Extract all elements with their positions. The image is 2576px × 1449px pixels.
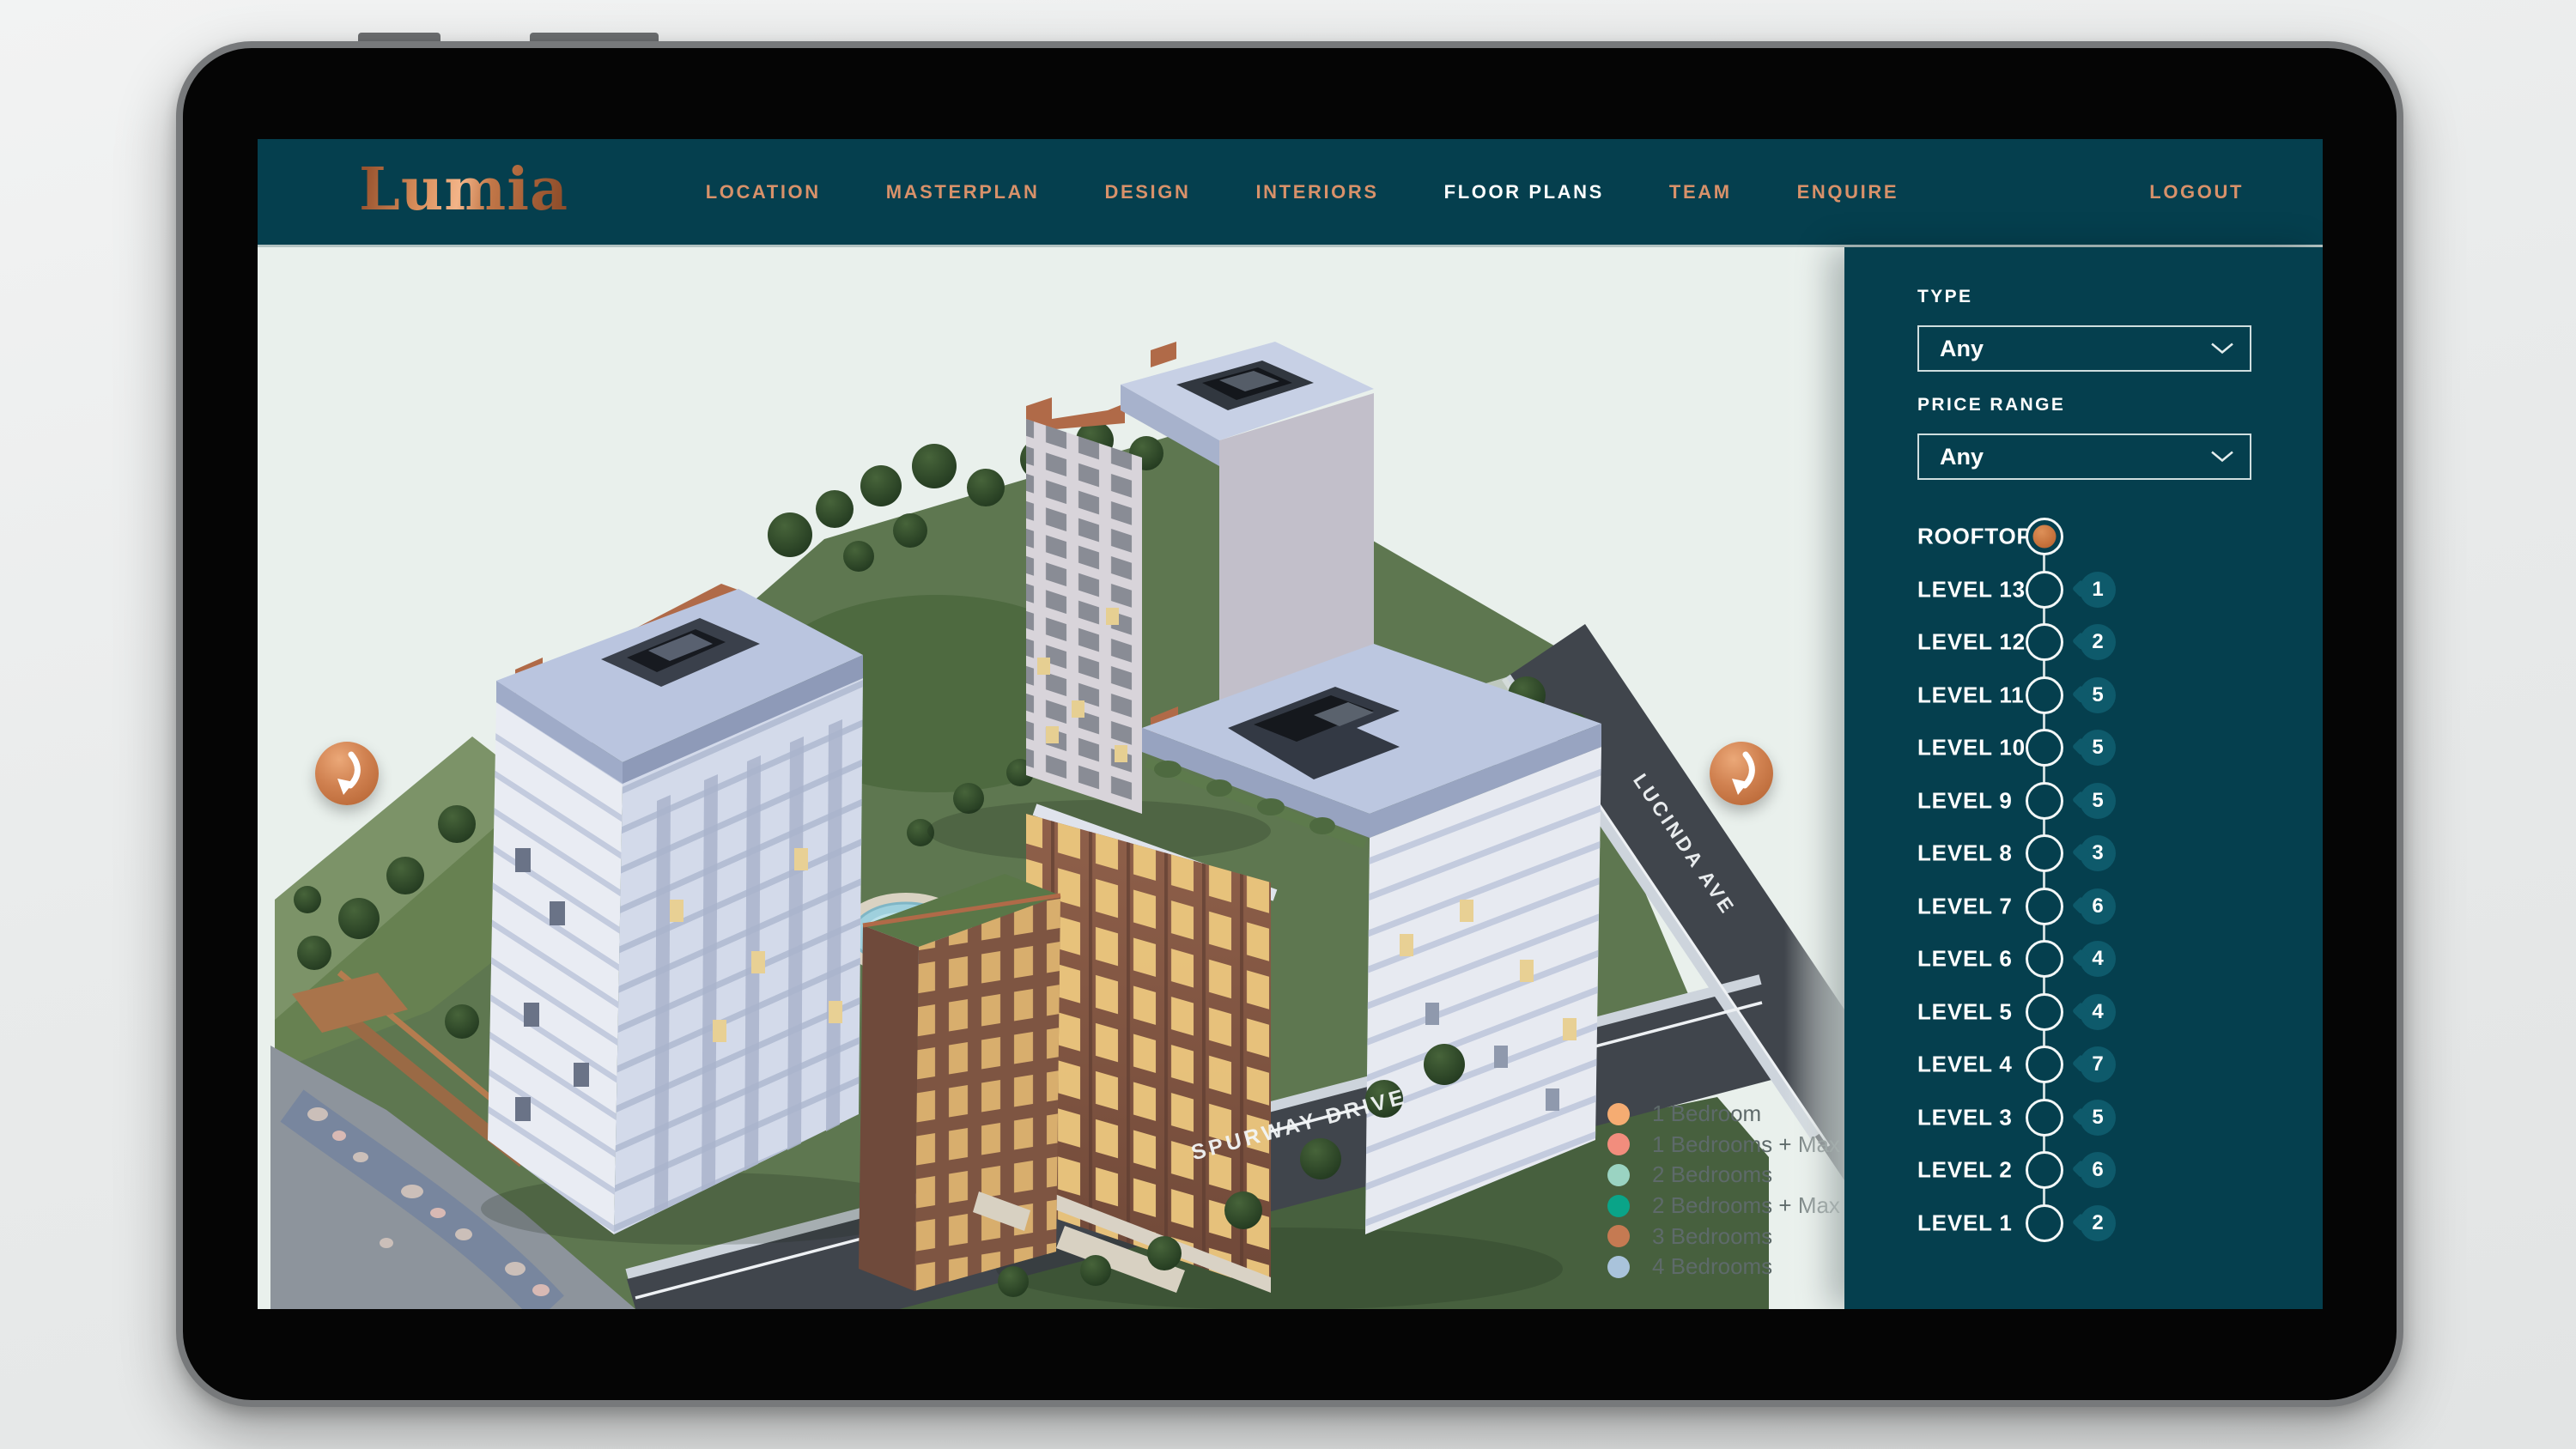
nav-item-design[interactable]: DESIGN bbox=[1105, 181, 1191, 203]
level-circle[interactable] bbox=[2026, 729, 2063, 767]
level-circle[interactable] bbox=[2026, 940, 2063, 978]
page: Lumia LOCATION MASTERPLAN DESIGN INTERIO… bbox=[0, 0, 2576, 1449]
level-selector: ROOFTOP LEVEL 13 1 LEVEL 12 2 LEVEL 11 5 bbox=[1844, 247, 2323, 1309]
level-circle[interactable] bbox=[2026, 623, 2063, 661]
rotate-right-button[interactable] bbox=[1710, 742, 1773, 805]
level-count-badge: 6 bbox=[2080, 1152, 2116, 1188]
level-count-badge: 5 bbox=[2080, 1100, 2116, 1136]
level-row-9[interactable]: LEVEL 9 5 bbox=[1844, 774, 2323, 828]
brand-logo: Lumia bbox=[359, 155, 568, 223]
level-row-7[interactable]: LEVEL 7 6 bbox=[1844, 880, 2323, 933]
level-row-8[interactable]: LEVEL 8 3 bbox=[1844, 827, 2323, 880]
level-count-badge: 5 bbox=[2080, 677, 2116, 713]
level-count-badge: 5 bbox=[2080, 783, 2116, 819]
nav-item-team[interactable]: TEAM bbox=[1669, 181, 1732, 203]
level-count-badge: 3 bbox=[2080, 835, 2116, 871]
level-circle[interactable] bbox=[2026, 1151, 2063, 1189]
level-circle[interactable] bbox=[2026, 1204, 2063, 1242]
level-row-10[interactable]: LEVEL 10 5 bbox=[1844, 721, 2323, 774]
level-row-3[interactable]: LEVEL 3 5 bbox=[1844, 1091, 2323, 1144]
level-count-badge: 4 bbox=[2080, 941, 2116, 977]
level-circle[interactable] bbox=[2026, 676, 2063, 714]
curved-arrow-icon bbox=[1710, 742, 1773, 805]
nav-item-floor-plans[interactable]: FLOOR PLANS bbox=[1444, 181, 1604, 203]
site-render-canvas: LUCINDA AVE SPURWAY DRIVE bbox=[258, 247, 1844, 1309]
nav-item-enquire[interactable]: ENQUIRE bbox=[1797, 181, 1899, 203]
level-count-badge: 5 bbox=[2080, 730, 2116, 766]
level-count-badge: 1 bbox=[2080, 572, 2116, 608]
level-circle[interactable] bbox=[2026, 888, 2063, 925]
level-circle[interactable] bbox=[2026, 993, 2063, 1031]
floor-filter-sidebar: TYPE Any PRICE RANGE Any ROOFTOP bbox=[1844, 247, 2323, 1309]
level-row-13[interactable]: LEVEL 13 1 bbox=[1844, 563, 2323, 616]
canvas-edge-fade bbox=[1784, 247, 1844, 1309]
level-count-badge: 2 bbox=[2080, 624, 2116, 660]
nav-item-masterplan[interactable]: MASTERPLAN bbox=[886, 181, 1040, 203]
level-row-1[interactable]: LEVEL 1 2 bbox=[1844, 1197, 2323, 1250]
legend-color-dot bbox=[1607, 1256, 1630, 1278]
level-circle[interactable] bbox=[2026, 834, 2063, 872]
level-circle[interactable] bbox=[2026, 782, 2063, 820]
logout-button[interactable]: LOGOUT bbox=[2149, 181, 2244, 203]
app-screen: Lumia LOCATION MASTERPLAN DESIGN INTERIO… bbox=[258, 139, 2323, 1309]
site-render: LUCINDA AVE SPURWAY DRIVE bbox=[258, 247, 1844, 1309]
level-circle[interactable] bbox=[2026, 1099, 2063, 1137]
nav-menu: LOCATION MASTERPLAN DESIGN INTERIORS FLO… bbox=[706, 139, 1899, 245]
nav-item-interiors[interactable]: INTERIORS bbox=[1255, 181, 1378, 203]
top-navbar: Lumia LOCATION MASTERPLAN DESIGN INTERIO… bbox=[258, 139, 2323, 247]
level-row-2[interactable]: LEVEL 2 6 bbox=[1844, 1143, 2323, 1197]
nav-item-location[interactable]: LOCATION bbox=[706, 181, 821, 203]
legend-color-dot bbox=[1607, 1133, 1630, 1155]
level-count-badge: 6 bbox=[2080, 888, 2116, 925]
level-circle-selected[interactable] bbox=[2026, 518, 2063, 555]
level-circle[interactable] bbox=[2026, 1046, 2063, 1083]
legend-color-dot bbox=[1607, 1103, 1630, 1125]
legend-color-dot bbox=[1607, 1164, 1630, 1186]
level-count-badge: 7 bbox=[2080, 1046, 2116, 1082]
legend-color-dot bbox=[1607, 1195, 1630, 1217]
curved-arrow-icon bbox=[315, 742, 379, 805]
level-circle[interactable] bbox=[2026, 571, 2063, 609]
building-left bbox=[488, 584, 863, 1234]
level-row-5[interactable]: LEVEL 5 4 bbox=[1844, 985, 2323, 1039]
level-row-rooftop[interactable]: ROOFTOP bbox=[1844, 510, 2323, 563]
legend-color-dot bbox=[1607, 1225, 1630, 1247]
level-row-12[interactable]: LEVEL 12 2 bbox=[1844, 615, 2323, 669]
level-count-badge: 2 bbox=[2080, 1205, 2116, 1241]
level-row-6[interactable]: LEVEL 6 4 bbox=[1844, 932, 2323, 985]
level-count-badge: 4 bbox=[2080, 994, 2116, 1030]
building-mid bbox=[859, 874, 1060, 1291]
rotate-left-button[interactable] bbox=[315, 742, 379, 805]
level-row-4[interactable]: LEVEL 4 7 bbox=[1844, 1038, 2323, 1091]
level-row-11[interactable]: LEVEL 11 5 bbox=[1844, 669, 2323, 722]
